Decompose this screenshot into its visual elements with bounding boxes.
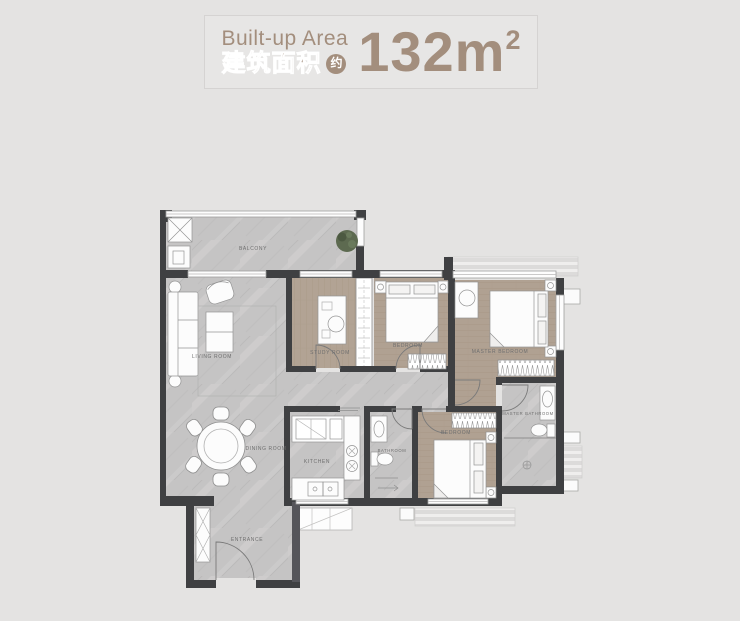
side-table <box>169 281 181 293</box>
nightstand <box>375 281 386 293</box>
wardrobe <box>452 413 496 428</box>
room-label-balcony: BALCONY <box>239 246 267 252</box>
room-label-living-room: LIVING ROOM <box>192 354 232 360</box>
pillow <box>474 443 483 465</box>
pillow <box>538 321 546 344</box>
room-label-master-bathroom: MASTER BATHROOM <box>502 411 554 416</box>
ac-unit-box <box>400 508 414 520</box>
balcony-side-window <box>357 218 364 246</box>
room-label-master-bedroom: MASTER BEDROOM <box>472 349 528 355</box>
page: Built-up Area 建筑面积 约 132m2 <box>0 0 740 621</box>
nightstand <box>545 346 556 357</box>
study-furniture <box>318 296 346 344</box>
wardrobe <box>498 360 554 376</box>
kitchen-counter-bottom <box>292 478 344 500</box>
floorplan-svg: BALCONY LIVING ROOM DINING ROOM ENTRANCE… <box>0 0 740 621</box>
nightstand <box>438 281 448 293</box>
vanity-sink <box>371 416 387 442</box>
pillow <box>474 471 483 493</box>
toilet-tank <box>547 424 555 437</box>
side-table <box>169 375 181 387</box>
closet-strip <box>356 278 372 368</box>
master-side-window <box>556 295 564 350</box>
entrance-door-opening <box>216 578 256 588</box>
nightstand <box>486 432 496 443</box>
kitchen-counter-side <box>344 416 360 480</box>
room-label-bedroom-top: BEDROOM <box>393 343 423 349</box>
room-label-kitchen: KITCHEN <box>304 459 330 465</box>
sofa <box>168 292 198 376</box>
desk-chair <box>328 316 344 332</box>
pillow <box>538 294 546 317</box>
shoe-cabinet <box>196 508 210 562</box>
room-label-entrance: ENTRANCE <box>231 537 263 543</box>
room-label-dining-room: DINING ROOM <box>245 446 286 452</box>
room-label-bedroom-bottom: BEDROOM <box>441 430 471 436</box>
nightstand <box>545 280 556 291</box>
cabinet <box>330 419 342 439</box>
potted-plant-icon <box>336 230 358 252</box>
wardrobe <box>408 354 446 369</box>
nightstand <box>486 487 496 498</box>
water-heater <box>168 246 190 268</box>
ac-unit-box <box>562 289 580 304</box>
toilet-bowl <box>531 424 547 436</box>
pillow <box>389 285 410 294</box>
room-label-study-room: STUDY ROOM <box>310 350 350 356</box>
stool <box>459 290 475 306</box>
pillow <box>414 285 435 294</box>
toilet-bowl <box>377 453 393 465</box>
room-label-bathroom: BATHROOM <box>378 448 407 453</box>
